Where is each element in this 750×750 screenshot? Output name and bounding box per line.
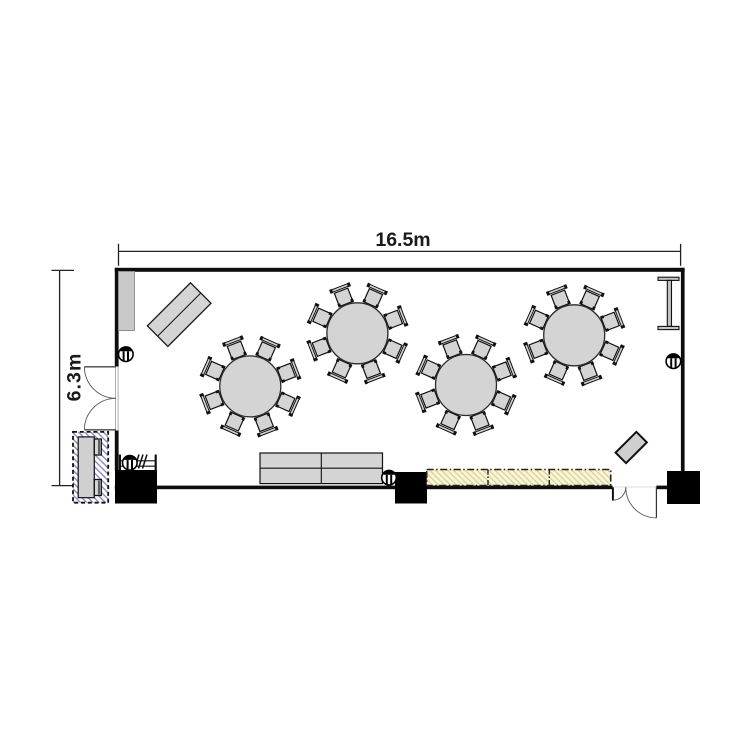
svg-text:6.3m: 6.3m: [64, 353, 86, 402]
svg-text:16.5m: 16.5m: [375, 229, 430, 251]
